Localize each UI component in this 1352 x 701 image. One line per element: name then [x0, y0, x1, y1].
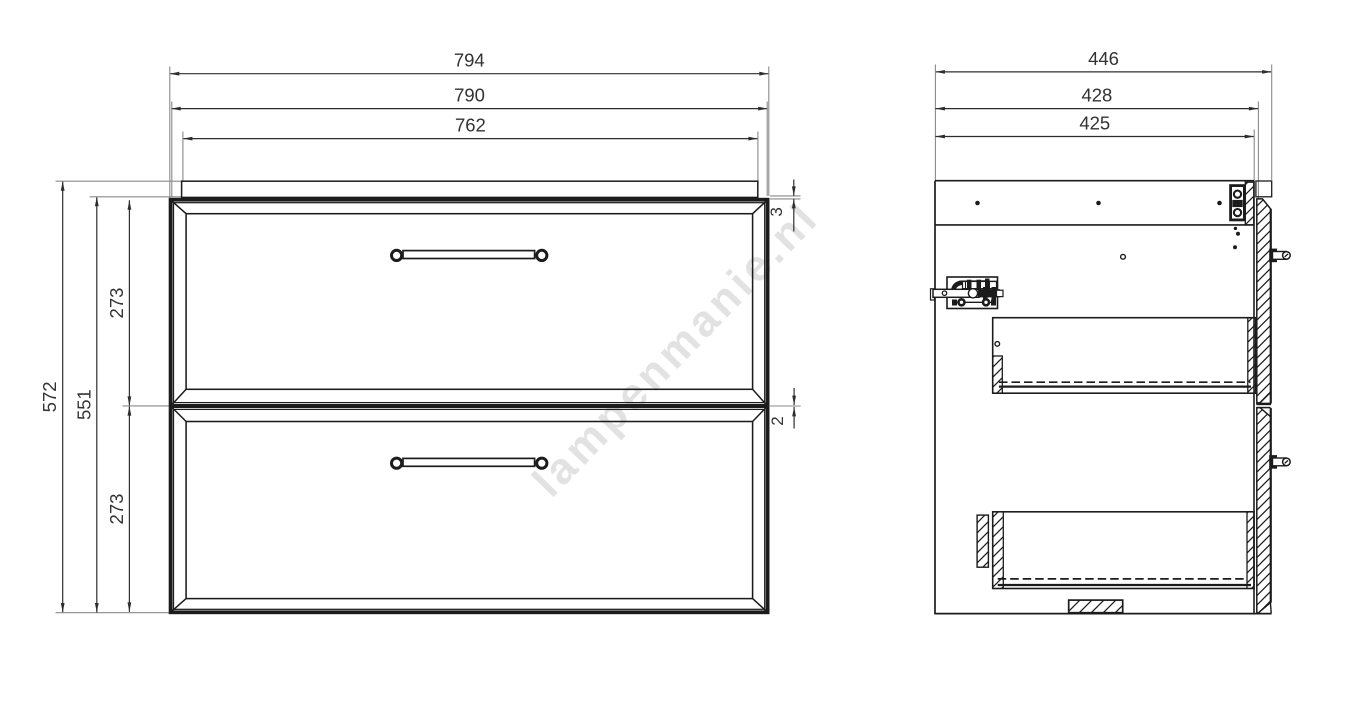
- svg-text:428: 428: [1081, 85, 1112, 106]
- svg-text:762: 762: [455, 115, 486, 136]
- svg-text:273: 273: [106, 494, 127, 525]
- svg-text:3: 3: [767, 207, 786, 216]
- svg-text:551: 551: [73, 389, 94, 420]
- svg-text:425: 425: [1079, 113, 1110, 134]
- svg-text:446: 446: [1088, 48, 1119, 69]
- svg-text:790: 790: [454, 85, 485, 106]
- svg-text:273: 273: [106, 288, 127, 319]
- svg-text:2: 2: [768, 416, 787, 425]
- svg-text:794: 794: [454, 50, 485, 71]
- svg-text:572: 572: [39, 381, 60, 412]
